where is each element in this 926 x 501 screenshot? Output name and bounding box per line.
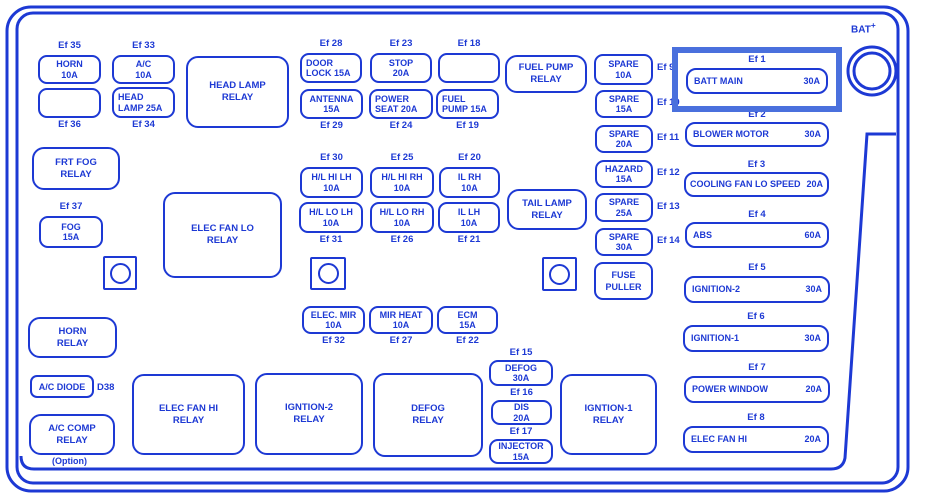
fuse-ef2: BLOWER MOTOR30A bbox=[685, 122, 829, 147]
option-note-label: (Option) bbox=[52, 456, 87, 466]
mounting-hole-1-circle bbox=[110, 263, 131, 284]
fuse-ef22: ECM15A bbox=[437, 306, 498, 334]
fuse-ef13: SPARE25A bbox=[595, 193, 653, 222]
fuse-ef32-label: Ef 32 bbox=[302, 336, 365, 346]
fuse-ef19-label: Ef 19 bbox=[436, 121, 499, 131]
fuse-ef15: DEFOG30A bbox=[489, 360, 553, 386]
relay-ac-comp: A/C COMP RELAY bbox=[29, 414, 115, 455]
fuse-ef24-label: Ef 24 bbox=[369, 121, 433, 131]
fuse-ef5: IGNITION-230A bbox=[684, 276, 830, 303]
fuse-ef30: H/L HI LH10A bbox=[300, 167, 363, 198]
fuse-ef14: SPARE30A bbox=[595, 228, 653, 256]
relay-horn: HORN RELAY bbox=[28, 317, 117, 358]
fuse-ef35: HORN10A bbox=[38, 55, 101, 84]
fuse-ef23-label: Ef 23 bbox=[370, 39, 432, 49]
fuse-ef20: IL RH10A bbox=[439, 167, 500, 198]
relay-elec-fan-hi: ELEC FAN HI RELAY bbox=[132, 374, 245, 455]
fuse-ef15-label: Ef 15 bbox=[489, 348, 553, 358]
fuse-ef21-label: Ef 21 bbox=[438, 235, 500, 245]
relay-fuel-pump: FUEL PUMP RELAY bbox=[505, 55, 587, 93]
fuse-ef17-label: Ef 17 bbox=[489, 427, 553, 437]
fuse-ef37: FOG15A bbox=[39, 216, 103, 248]
fuse-ef13-label: Ef 13 bbox=[657, 202, 680, 212]
fuse-puller: FUSE PULLER bbox=[594, 262, 653, 300]
fuse-ef18-label: Ef 18 bbox=[438, 39, 500, 49]
fuse-ef34-label: Ef 34 bbox=[112, 120, 175, 130]
mounting-hole-2 bbox=[310, 257, 346, 290]
fuse-ef36 bbox=[38, 88, 101, 118]
fuse-ef5-label: Ef 5 bbox=[684, 263, 830, 273]
fuse-ef30-label: Ef 30 bbox=[300, 153, 363, 163]
fuse-ef4-label: Ef 4 bbox=[685, 210, 829, 220]
relay-defog: DEFOG RELAY bbox=[373, 373, 483, 457]
fuse-ef3: COOLING FAN LO SPEED20A bbox=[684, 172, 829, 197]
fuse-ef20-label: Ef 20 bbox=[439, 153, 500, 163]
fuse-ef8: ELEC FAN HI20A bbox=[683, 426, 829, 453]
fuse-ef33: A/C10A bbox=[112, 55, 175, 84]
battery-plus-sign: + bbox=[871, 20, 876, 30]
fuse-ef8-label: Ef 8 bbox=[683, 413, 829, 423]
fuse-ef18 bbox=[438, 53, 500, 83]
mounting-hole-3 bbox=[542, 257, 577, 291]
fuse-ef14-label: Ef 14 bbox=[657, 236, 680, 246]
fuse-ef7-label: Ef 7 bbox=[684, 363, 830, 373]
fuse-ef10: SPARE15A bbox=[595, 90, 653, 118]
relay-tail-lamp: TAIL LAMP RELAY bbox=[507, 189, 587, 230]
fuse-ef29-label: Ef 29 bbox=[300, 121, 363, 131]
relay-frt-fog: FRT FOG RELAY bbox=[32, 147, 120, 190]
fuse-ef28-label: Ef 28 bbox=[300, 39, 362, 49]
fuse-ef31-label: Ef 31 bbox=[299, 235, 363, 245]
fuse-ef31: H/L LO LH10A bbox=[299, 202, 363, 233]
fuse-ef4: ABS60A bbox=[685, 222, 829, 248]
fuse-ef33-label: Ef 33 bbox=[112, 41, 175, 51]
fuse-ef23: STOP20A bbox=[370, 53, 432, 83]
fuse-ef36-label: Ef 36 bbox=[38, 120, 101, 130]
fuse-ef12-label: Ef 12 bbox=[657, 168, 680, 178]
battery-terminal-inner bbox=[854, 53, 890, 89]
fuse-ef25: H/L HI RH10A bbox=[370, 167, 434, 198]
fuse-ef7: POWER WINDOW20A bbox=[684, 376, 830, 403]
relay-igntion-2: IGNTION-2 RELAY bbox=[255, 373, 363, 455]
fuse-ef22-label: Ef 22 bbox=[437, 336, 498, 346]
relay-elec-fan-lo: ELEC FAN LO RELAY bbox=[163, 192, 282, 278]
fuse-ef28: DOORLOCK 15A bbox=[300, 53, 362, 83]
fuse-ef26: H/L LO RH10A bbox=[370, 202, 434, 233]
fuse-ef27-label: Ef 27 bbox=[369, 336, 433, 346]
highlight-box-batt-main bbox=[672, 47, 842, 112]
fuse-ef6: IGNITION-130A bbox=[683, 325, 829, 352]
fuse-ef16-label: Ef 16 bbox=[491, 388, 552, 398]
battery-terminal-outer bbox=[848, 47, 896, 95]
fuse-ef37-label: Ef 37 bbox=[39, 202, 103, 212]
fuse-ef17: INJECTOR15A bbox=[489, 439, 553, 464]
fuse-ef11-label: Ef 11 bbox=[657, 133, 679, 143]
fuse-ef12: HAZARD15A bbox=[595, 160, 653, 188]
fuse-ef32: ELEC. MIR10A bbox=[302, 306, 365, 334]
fuse-ef29: ANTENNA15A bbox=[300, 89, 363, 119]
fuse-ef26-label: Ef 26 bbox=[370, 235, 434, 245]
fuse-ef27: MIR HEAT10A bbox=[369, 306, 433, 334]
fuse-ef3-label: Ef 3 bbox=[684, 160, 829, 170]
fuse-ef6-label: Ef 6 bbox=[683, 312, 829, 322]
mounting-hole-1 bbox=[103, 256, 137, 290]
mounting-hole-2-circle bbox=[318, 263, 339, 284]
fuse-ef24: POWERSEAT 20A bbox=[369, 89, 433, 119]
battery-label: BAT+ bbox=[851, 20, 876, 35]
fuse-ef9: SPARE10A bbox=[594, 54, 653, 85]
fuse-ef21: IL LH10A bbox=[438, 202, 500, 233]
ac-diode: A/C DIODE bbox=[30, 375, 94, 398]
fuse-ef35-label: Ef 35 bbox=[38, 41, 101, 51]
fuse-box-diagram: BAT+ Ef 35 HORN10A Ef 33 A/C10A Ef 36 HE… bbox=[0, 0, 926, 501]
fuse-ef25-label: Ef 25 bbox=[370, 153, 434, 163]
fuse-ef34: HEADLAMP 25A bbox=[112, 87, 175, 118]
battery-label-text: BAT bbox=[851, 24, 871, 35]
diode-code-label: D38 bbox=[97, 383, 114, 393]
relay-igntion-1: IGNTION-1 RELAY bbox=[560, 374, 657, 455]
fuse-ef16: DIS20A bbox=[491, 400, 552, 425]
relay-head-lamp: HEAD LAMP RELAY bbox=[186, 56, 289, 128]
mounting-hole-3-circle bbox=[549, 264, 570, 285]
fuse-ef11: SPARE20A bbox=[595, 125, 653, 153]
fuse-ef19: FUELPUMP 15A bbox=[436, 89, 499, 119]
